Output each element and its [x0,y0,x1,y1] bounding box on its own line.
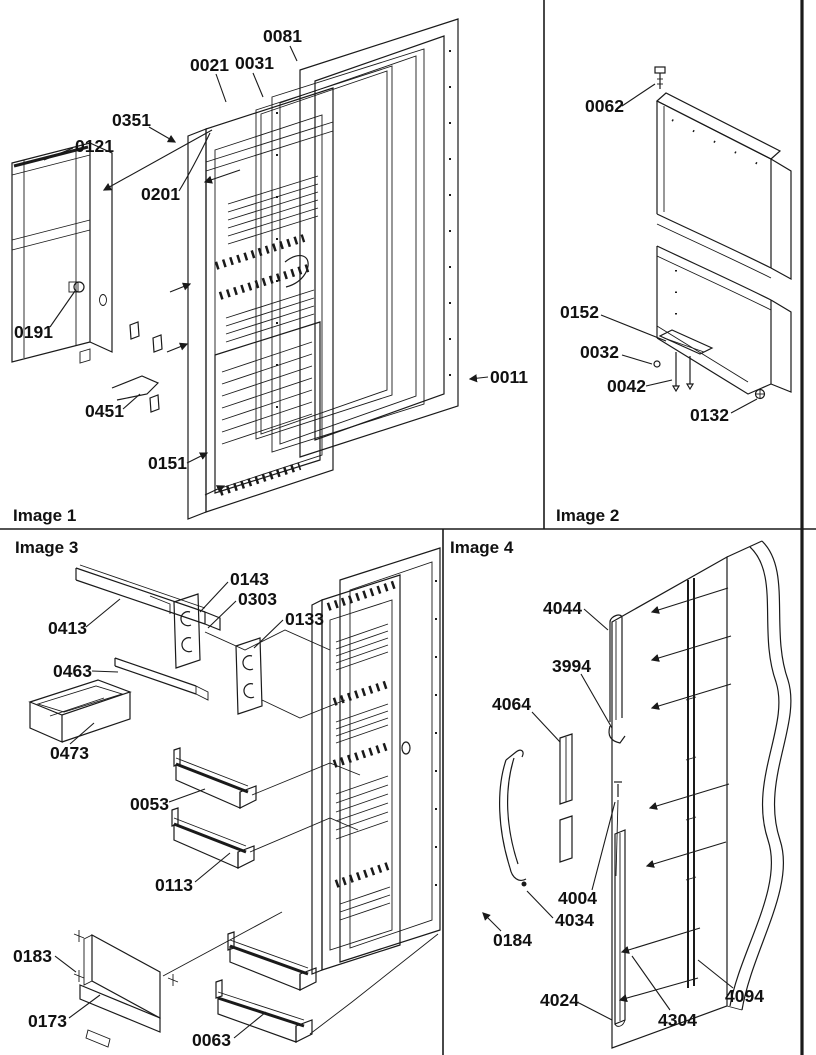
panel-upper-section-shape [657,93,791,279]
image4-labels: 4044 3994 4064 4004 4034 0184 4024 4304 … [483,598,764,1030]
parts-diagram-page: 0081 0021 0031 0351 0121 0201 0191 0451 … [0,0,816,1055]
part-label-0063: 0063 [192,1030,231,1050]
part-label-0451: 0451 [85,401,124,421]
image4-title: Image 4 [450,538,514,557]
part-label-4094: 4094 [725,986,764,1006]
part-label-0011: 0011 [490,367,528,387]
part-label-0191: 0191 [14,322,53,342]
part-label-3994: 3994 [552,656,591,676]
door-gasket-inner-shape [256,66,392,439]
part-label-0133: 0133 [285,609,324,629]
part-label-0021: 0021 [190,55,229,75]
part-label-0143: 0143 [230,569,269,589]
part-label-4034: 4034 [555,910,594,930]
door-bin-shape-1 [174,748,256,808]
part-label-0113: 0113 [155,875,193,895]
image3-title: Image 3 [15,538,78,557]
trim-strip-4064-shape [560,734,572,862]
cover-panel-shape [74,930,178,1047]
inner-door-panel-shape [312,548,440,974]
part-label-0183: 0183 [13,946,52,966]
clip-parts [112,322,162,412]
part-label-0173: 0173 [28,1011,67,1031]
part-label-0303: 0303 [238,589,277,609]
part-label-0413: 0413 [48,618,87,638]
inner-door-liner-shape [188,88,333,519]
door-stop-knob [74,282,84,292]
image1-drawing [12,19,458,519]
side-panel-shape [612,541,791,1048]
parts-diagram: 0081 0021 0031 0351 0121 0201 0191 0451 … [0,0,816,1055]
mullion-strip-shape [686,578,696,988]
part-label-4064: 4064 [492,694,531,714]
part-label-0151: 0151 [148,453,187,473]
part-label-4004: 4004 [558,888,597,908]
part-label-4044: 4044 [543,598,582,618]
door-bin-shape-2 [172,808,254,868]
part-label-0032: 0032 [580,342,619,362]
part-label-0152: 0152 [560,302,599,322]
part-label-0062: 0062 [585,96,624,116]
top-screw-shape [655,67,665,89]
bracket-shape-2 [236,638,262,714]
part-label-0081: 0081 [263,26,302,46]
image1-title: Image 1 [13,506,76,525]
trim-strip-shape [115,658,208,700]
part-label-0351: 0351 [112,110,151,130]
part-label-0201: 0201 [141,184,180,204]
outer-door-shape [300,19,458,457]
image2-drawing [654,67,791,399]
door-gasket-outer-shape [272,49,424,452]
image1-labels: 0081 0021 0031 0351 0121 0201 0191 0451 … [14,26,528,473]
crisper-bin-shape [30,680,130,742]
door-bin-shape-3 [228,932,316,990]
handle-shape [500,750,527,886]
part-label-0132: 0132 [690,405,729,425]
part-label-0184: 0184 [493,930,532,950]
part-label-4304: 4304 [658,1010,697,1030]
part-label-0473: 0473 [50,743,89,763]
part-label-4024: 4024 [540,990,579,1010]
part-label-0463: 0463 [53,661,92,681]
part-label-0053: 0053 [130,794,169,814]
part-label-0121: 0121 [75,136,114,156]
image2-title: Image 2 [556,506,619,525]
part-label-0031: 0031 [235,53,274,73]
location-arrows [620,588,731,1000]
hinge-hardware-shape [654,330,765,399]
part-label-0042: 0042 [607,376,646,396]
image2-labels: 0062 0152 0032 0042 0132 [560,84,757,425]
